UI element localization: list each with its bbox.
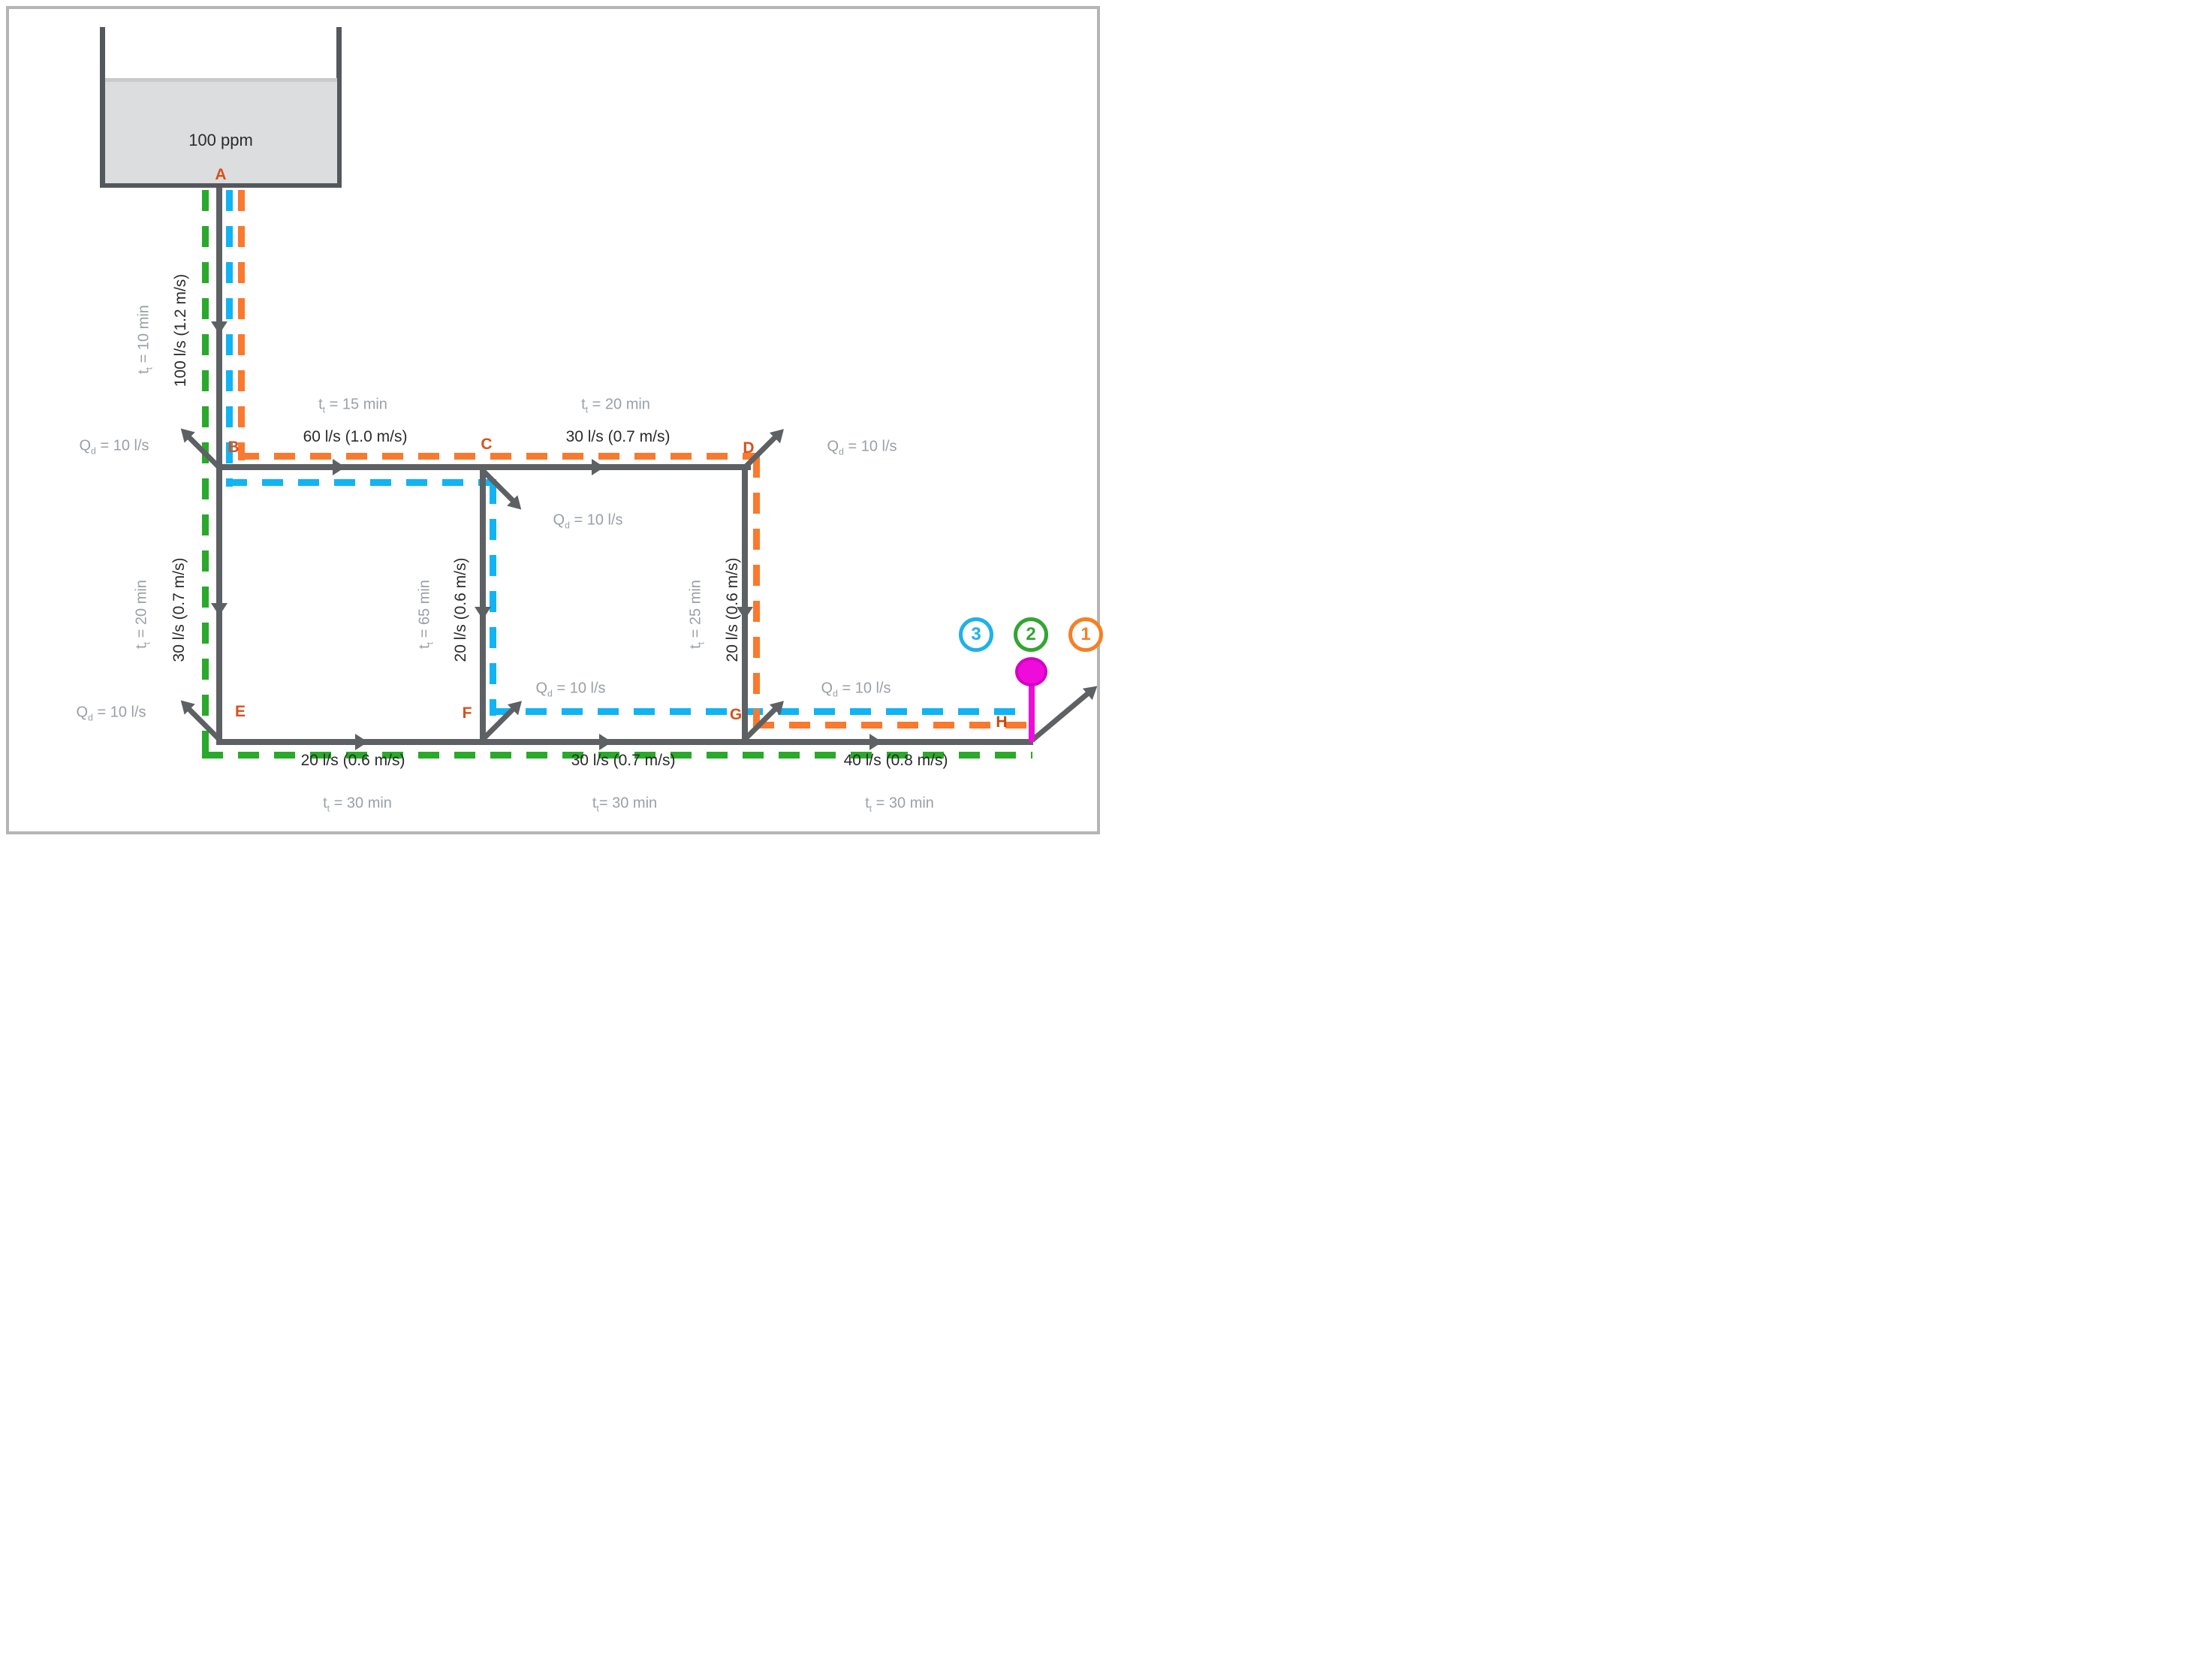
demand-label-d: Qd = 10 l/s xyxy=(827,439,897,457)
flow-label-ef: 20 l/s (0.6 m/s) xyxy=(301,752,405,770)
node-label-e: E xyxy=(235,703,246,721)
tt-label-fg: tt= 30 min xyxy=(592,795,657,814)
tt-label-ef: tt = 30 min xyxy=(323,795,392,814)
tt-label-cf: tt = 65 min xyxy=(417,580,435,649)
flow-label-be: 30 l/s (0.7 m/s) xyxy=(170,558,188,662)
flow-arrow-cf-icon xyxy=(475,607,491,620)
flow-arrow-ab-icon xyxy=(211,321,228,334)
node-label-a: A xyxy=(215,166,226,184)
pipe-e-f-g-h xyxy=(216,739,1033,745)
node-label-c: C xyxy=(481,436,492,454)
flow-arrow-fg-icon xyxy=(599,734,612,750)
flow-label-cf: 20 l/s (0.6 m/s) xyxy=(452,558,470,662)
path-1-orange-line-bd xyxy=(238,453,760,460)
tank-left-wall xyxy=(100,27,105,188)
pipe-c-f xyxy=(480,464,486,745)
pin-marker-stem xyxy=(1029,684,1035,742)
demand-label-e: Qd = 10 l/s xyxy=(76,704,146,723)
tt-label-bc: tt = 15 min xyxy=(318,397,387,415)
node-label-d: D xyxy=(743,439,754,457)
path-1-orange-line-gh xyxy=(753,722,1032,728)
flow-arrow-gh-icon xyxy=(869,734,882,750)
flow-arrow-bc-icon xyxy=(333,459,345,475)
path-2-green-line-vertical xyxy=(202,190,209,759)
demand-label-b: Qd = 10 l/s xyxy=(79,438,149,457)
pipe-d-g xyxy=(742,464,748,745)
flow-label-ab: 100 l/s (1.2 m/s) xyxy=(172,274,190,388)
path-3-blue-line-cf xyxy=(490,483,496,716)
path-1-orange-line-dg xyxy=(753,457,760,728)
flow-arrow-ef-icon xyxy=(355,734,368,750)
flow-label-bc: 60 l/s (1.0 m/s) xyxy=(303,428,408,446)
path-badge-2: 2 xyxy=(1014,617,1048,652)
demand-label-c: Qd = 10 l/s xyxy=(553,512,622,531)
path-badge-3: 3 xyxy=(959,617,993,652)
node-label-g: G xyxy=(730,706,742,724)
demand-label-f: Qd = 10 l/s xyxy=(535,680,605,699)
flow-label-gh: 40 l/s (0.8 m/s) xyxy=(844,752,948,770)
path-badge-1: 1 xyxy=(1068,617,1103,652)
flow-arrow-be-icon xyxy=(211,603,228,616)
pin-marker-icon xyxy=(1015,657,1047,686)
node-label-b: B xyxy=(228,439,239,457)
path-1-orange-line-vertical-ab xyxy=(238,190,245,460)
tank-concentration-label: 100 ppm xyxy=(188,131,253,150)
path-3-blue-line-fh xyxy=(490,708,1032,715)
tank-right-wall xyxy=(336,27,342,188)
flow-label-fg: 30 l/s (0.7 m/s) xyxy=(571,752,676,770)
node-label-h: H xyxy=(996,713,1007,731)
demand-label-g: Qd = 10 l/s xyxy=(821,680,891,699)
flow-arrow-cd-icon xyxy=(592,459,604,475)
tt-label-cd: tt = 20 min xyxy=(581,397,650,415)
tt-label-ab: tt = 10 min xyxy=(136,305,155,374)
flow-label-dg: 20 l/s (0.6 m/s) xyxy=(724,558,742,662)
tt-label-gh: tt = 30 min xyxy=(865,795,934,814)
path-3-blue-line-bc xyxy=(226,479,496,486)
network-diagram: 100 ppm tt = 10 min 100 l/s (1.2 m/s) tt… xyxy=(0,0,1106,840)
tt-label-dg: tt = 25 min xyxy=(688,580,707,649)
flow-label-cd: 30 l/s (0.7 m/s) xyxy=(566,428,671,446)
tt-label-be: tt = 20 min xyxy=(134,580,152,649)
node-label-f: F xyxy=(463,704,472,722)
